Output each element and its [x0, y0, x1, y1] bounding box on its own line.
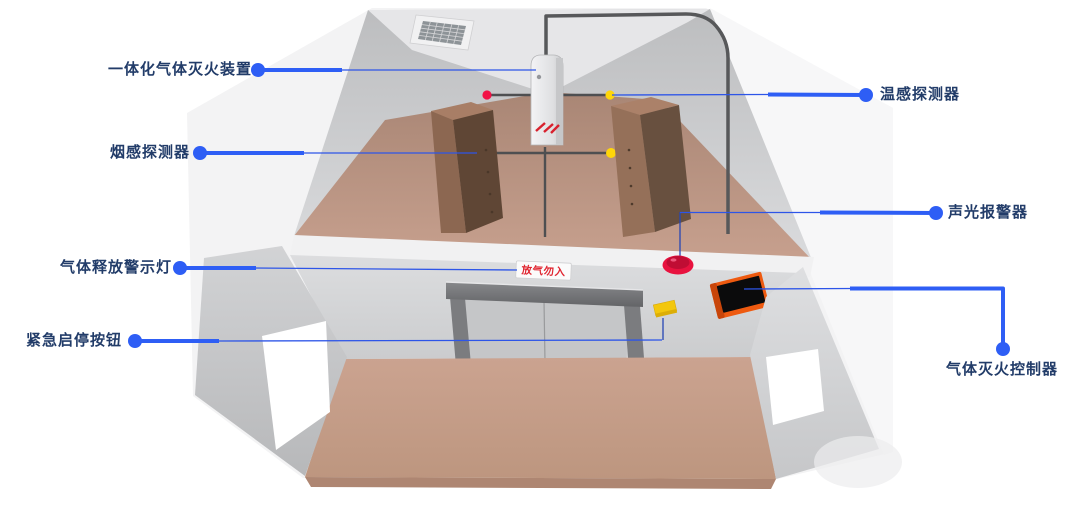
- gas-suppression-room-diagram: 放气勿入: [0, 0, 1080, 520]
- label-integrated-gas-unit: 一体化气体灭火装置: [58, 60, 252, 80]
- front-floor-edge: [305, 477, 776, 489]
- leader-dot: [173, 261, 187, 275]
- leader-dot: [193, 146, 207, 160]
- gas-cabinet-unit: [531, 55, 563, 145]
- label-sound-light-alarm: 声光报警器: [948, 203, 1028, 223]
- gas-release-warning-sign: 放气勿入: [516, 261, 572, 280]
- leader-dot: [929, 206, 943, 220]
- sound-light-alarm-device: [663, 256, 694, 275]
- leader-dot: [251, 63, 265, 77]
- equipment-rack-left: [431, 102, 503, 233]
- leader-dot: [128, 334, 142, 348]
- leader-dot: [859, 88, 873, 102]
- label-smoke-detector: 烟感探测器: [58, 143, 190, 163]
- svg-text:放气勿入: 放气勿入: [520, 264, 566, 279]
- smoke-detector-dot-upper: [482, 90, 491, 99]
- heat-detector-dot: [606, 148, 616, 158]
- ground-shadow: [814, 436, 902, 488]
- leader-dot: [996, 342, 1010, 356]
- front-floor: [305, 357, 776, 479]
- label-gas-release-warning-light: 气体释放警示灯: [40, 258, 172, 278]
- label-gas-controller: 气体灭火控制器: [946, 360, 1058, 380]
- label-heat-detector: 温感探测器: [880, 85, 960, 105]
- equipment-rack-right: [611, 97, 691, 237]
- label-emergency-button: 紧急启停按钮: [18, 331, 122, 351]
- door: [446, 282, 645, 371]
